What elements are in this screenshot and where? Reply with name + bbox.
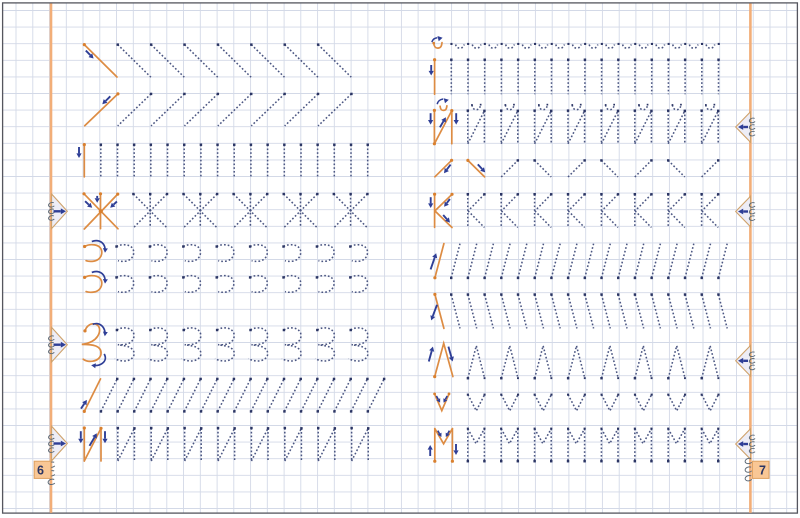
svg-text:6: 6 <box>37 464 44 478</box>
svg-text:7: 7 <box>759 464 766 478</box>
